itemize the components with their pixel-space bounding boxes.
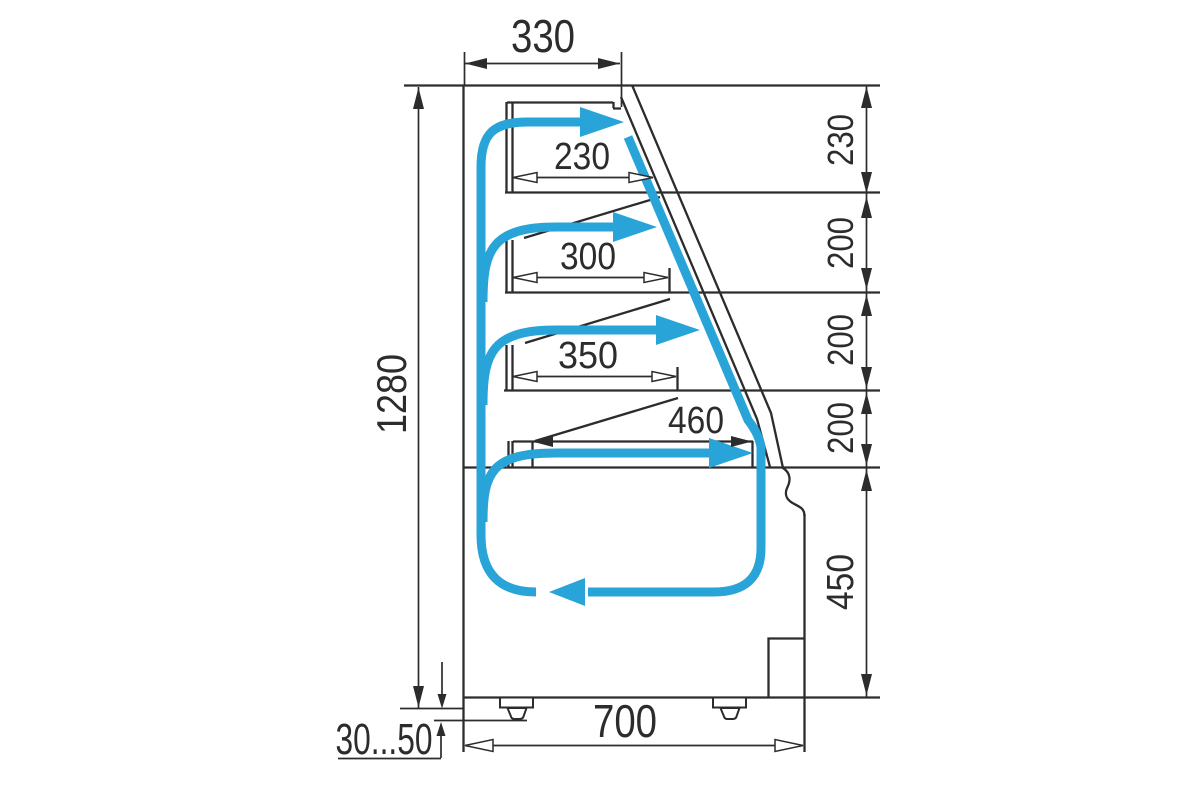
dim-open-arrowhead [465, 740, 493, 752]
dim-open-arrowhead [513, 273, 537, 283]
dim-overall-height-label: 1280 [368, 354, 415, 434]
dim-open-arrowhead [652, 372, 676, 382]
dim-arrowhead [465, 58, 487, 69]
dim-right-label-2: 200 [820, 217, 861, 269]
foot-right-pad [721, 708, 740, 719]
dim-open-arrowhead [513, 173, 537, 183]
dim-top-width-label: 330 [511, 10, 575, 62]
dim-legs-range: 30...50 [336, 662, 447, 764]
dim-shelf3-depth: 350 [513, 335, 676, 382]
dim-right-label-3: 200 [820, 314, 861, 366]
dim-right-label-4: 200 [820, 402, 861, 454]
dim-arrowhead [598, 58, 620, 69]
dim-arrowhead [861, 268, 872, 290]
dim-legs-label: 30...50 [336, 715, 433, 764]
dim-arrowhead [861, 674, 872, 696]
airflow-arrowhead-shelf2 [613, 212, 657, 242]
technical-drawing: 330 1280 230 300 350 [0, 0, 1200, 800]
dim-shelf1-label: 230 [554, 136, 610, 178]
cabinet-outline [400, 85, 880, 752]
dim-base-depth-label: 700 [593, 695, 657, 747]
airflow-arrowhead-return [549, 578, 585, 606]
dim-top-width: 330 [465, 10, 622, 107]
dim-arrowhead [437, 722, 446, 736]
airflow [481, 107, 761, 606]
dim-right-label-5: 450 [820, 554, 862, 610]
dim-arrowhead [413, 686, 424, 708]
dim-arrowhead [861, 87, 872, 109]
dim-arrowhead [861, 444, 872, 466]
airflow-arrowhead-shelf1 [580, 107, 624, 137]
dim-right-label-1: 230 [820, 114, 861, 166]
foot-left-plate [500, 698, 533, 708]
dim-open-arrowhead [775, 740, 803, 752]
foot-right-plate [713, 698, 746, 708]
dim-arrowhead [861, 172, 872, 194]
display-case-diagram: 330 1280 230 300 350 [0, 0, 1200, 800]
dim-shelf2-depth: 300 [513, 236, 668, 283]
dim-arrowhead [861, 367, 872, 389]
dim-overall-height: 1280 [368, 87, 424, 708]
dim-arrowhead [731, 436, 752, 447]
dim-deck-label: 460 [668, 400, 724, 442]
air-deflector-diagonals [524, 197, 678, 441]
machine-compartment-step [769, 639, 805, 698]
dim-shelf2-label: 300 [560, 236, 616, 278]
dim-deck-depth: 460 [532, 400, 752, 447]
airflow-branch-deck [483, 453, 711, 522]
dim-shelf3-label: 350 [558, 335, 618, 377]
dim-arrowhead [861, 393, 872, 415]
foot-left-pad [508, 708, 527, 719]
dim-arrowhead [413, 88, 424, 110]
dim-arrowhead [438, 694, 447, 709]
dim-arrowhead [861, 295, 872, 317]
airflow-arrowhead-shelf3 [656, 315, 700, 345]
dim-open-arrowhead [644, 273, 668, 283]
dim-arrowhead [861, 470, 872, 492]
dim-arrowhead [861, 197, 872, 219]
foot-left [500, 698, 533, 720]
foot-right [713, 698, 746, 720]
dim-open-arrowhead [513, 372, 537, 382]
